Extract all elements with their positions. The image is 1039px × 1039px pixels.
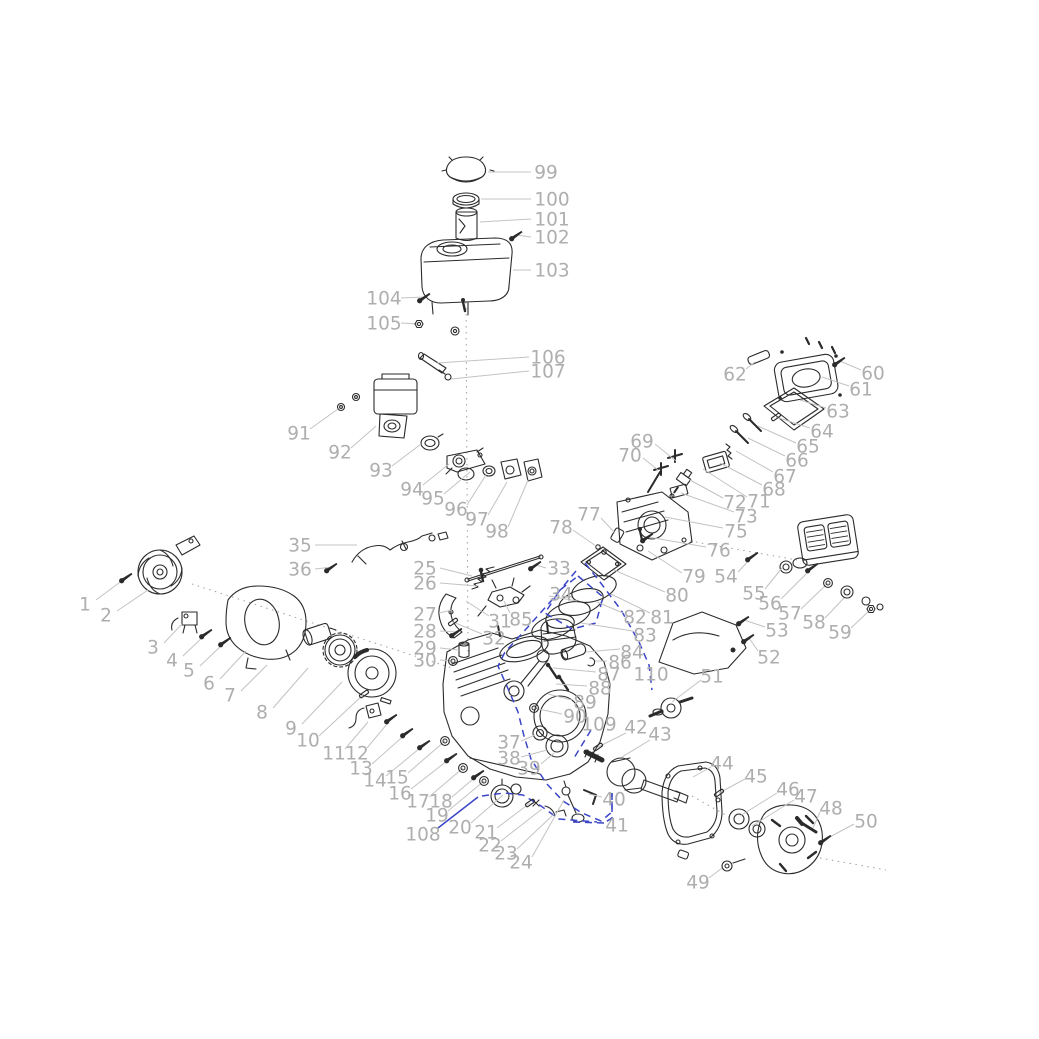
leader-line-46 [740, 793, 777, 816]
bolt-glyph [744, 550, 759, 563]
starter-cup-sprite [301, 623, 336, 647]
leader-line-91 [310, 409, 338, 429]
part-label-45: 45 [744, 767, 768, 788]
part-label-48: 48 [819, 799, 843, 820]
part-label-95: 95 [421, 489, 445, 510]
leader-line-77 [601, 518, 615, 533]
leader-line-98 [508, 480, 528, 527]
fuel-cap-sprite [442, 157, 494, 182]
part-label-107: 107 [530, 362, 565, 383]
bolt-glyph [383, 712, 398, 725]
leader-line-87 [553, 668, 596, 672]
bolt-glyph [443, 751, 458, 764]
leader-line-72 [690, 480, 723, 498]
leader-line-22 [501, 809, 542, 841]
leader-line-43 [622, 740, 650, 757]
part-label-49: 49 [686, 873, 710, 894]
leader-line-101 [480, 219, 531, 222]
leader-line-67 [736, 451, 773, 472]
kit-outline-3 [482, 793, 597, 822]
part-label-109: 109 [581, 715, 616, 736]
part-label-24: 24 [509, 853, 533, 874]
part-label-93: 93 [369, 461, 393, 482]
leader-line-53 [744, 620, 765, 627]
part-label-2: 2 [100, 606, 112, 627]
leader-line-70 [643, 458, 658, 470]
leader-line-9 [302, 682, 342, 724]
main-bearing-sprite [546, 735, 568, 757]
leader-line-49 [709, 868, 722, 878]
part-label-14: 14 [363, 771, 387, 792]
part-label-85: 85 [509, 610, 533, 631]
part-label-100: 100 [534, 190, 569, 211]
part-label-9: 9 [285, 719, 297, 740]
part-label-32: 32 [482, 629, 506, 650]
part-label-108: 108 [405, 825, 440, 846]
part-label-30: 30 [413, 651, 437, 672]
camshaft-sprite [650, 698, 692, 718]
flywheel-sprite [348, 649, 396, 704]
part-label-41: 41 [605, 816, 629, 837]
leader-line-93 [392, 444, 421, 466]
part-label-4: 4 [166, 651, 178, 672]
leader-line-88 [556, 684, 587, 686]
part-label-76: 76 [707, 541, 731, 562]
leader-line-65 [758, 426, 796, 443]
leader-line-75 [665, 517, 723, 528]
axis-line-2 [690, 541, 797, 560]
part-label-102: 102 [534, 228, 569, 249]
leader-line-57 [801, 583, 828, 609]
rocker-cover-sprite [773, 338, 842, 403]
crankshaft-sprite [585, 750, 688, 803]
part-label-79: 79 [682, 567, 706, 588]
leader-line-8 [273, 668, 308, 708]
cylinder-head-sprite [617, 492, 692, 560]
axis-line-3 [692, 796, 731, 818]
leader-line-23 [517, 814, 554, 849]
part-label-44: 44 [710, 754, 734, 775]
part-label-78: 78 [549, 518, 573, 539]
leader-line-24 [532, 800, 564, 857]
part-label-20: 20 [448, 818, 472, 839]
leader-line-69 [655, 444, 676, 461]
part-label-8: 8 [256, 703, 268, 724]
governor-rod-sprite [465, 555, 543, 589]
part-label-70: 70 [618, 446, 642, 467]
fuel-cap-gasket-sprite [453, 193, 479, 208]
fuel-filter-cup-sprite [456, 208, 477, 241]
bolt-glyph [198, 627, 213, 640]
leader-line-80 [614, 570, 665, 592]
part-label-42: 42 [624, 718, 648, 739]
crankcase-cover-sprite [662, 762, 722, 860]
leader-line-61 [822, 377, 849, 386]
part-label-52: 52 [757, 648, 781, 669]
leader-line-105 [401, 323, 419, 324]
leader-line-10 [319, 694, 364, 736]
part-number-labels: 1234567891011121314151617181920212223242… [79, 163, 885, 894]
part-label-62: 62 [723, 365, 747, 386]
bolt-glyph [804, 561, 819, 574]
leader-line-55 [765, 568, 782, 589]
part-label-98: 98 [485, 522, 509, 543]
part-label-54: 54 [714, 567, 738, 588]
part-label-57: 57 [778, 604, 802, 625]
leader-line-15 [408, 741, 445, 773]
muffler-sprite [780, 514, 883, 610]
leader-line-45 [719, 779, 745, 793]
part-label-11: 11 [322, 744, 346, 765]
leader-line-38 [521, 750, 547, 757]
leader-line-95 [444, 472, 470, 494]
bolt-glyph [118, 571, 133, 584]
axis-line-0 [466, 302, 468, 652]
part-label-6: 6 [203, 674, 215, 695]
leader-line-62 [746, 362, 755, 369]
leader-line-33 [536, 565, 546, 568]
part-label-59: 59 [828, 623, 852, 644]
part-label-26: 26 [413, 574, 437, 595]
starter-pulley-sprite [323, 633, 357, 667]
leader-line-97 [488, 482, 507, 515]
part-label-51: 51 [700, 667, 724, 688]
leader-line-82 [597, 602, 623, 613]
engine-parts-diagram: 1234567891011121314151617181920212223242… [0, 0, 1039, 1039]
part-label-3: 3 [147, 638, 159, 659]
stop-switch-sprite [349, 703, 381, 728]
part-label-33: 33 [547, 559, 571, 580]
leader-line-31 [466, 601, 489, 616]
part-label-43: 43 [648, 725, 672, 746]
part-label-1: 1 [79, 595, 91, 616]
part-label-50: 50 [854, 812, 878, 833]
part-label-39: 39 [517, 759, 541, 780]
part-label-92: 92 [328, 443, 352, 464]
pto-housing-sprite [722, 805, 822, 874]
ignition-coil-sprite [172, 612, 197, 633]
bolt-glyph [217, 635, 232, 648]
carb-insulator-sprite [483, 459, 542, 481]
part-label-110: 110 [633, 665, 668, 686]
part-label-7: 7 [224, 686, 236, 707]
leader-line-78 [573, 530, 596, 546]
part-label-61: 61 [849, 380, 873, 401]
leader-line-58 [825, 598, 844, 618]
part-label-10: 10 [296, 731, 320, 752]
leader-line-66 [748, 438, 785, 456]
leader-line-60 [840, 361, 861, 370]
part-label-80: 80 [665, 586, 689, 607]
part-label-47: 47 [794, 787, 818, 808]
part-label-58: 58 [802, 613, 826, 634]
leader-line-106 [437, 357, 529, 363]
fuel-line-sprite [419, 353, 452, 381]
leader-line-29 [440, 648, 459, 650]
bolt-glyph [399, 726, 414, 739]
leader-line-27 [439, 610, 452, 613]
part-label-77: 77 [577, 505, 601, 526]
part-label-36: 36 [288, 560, 312, 581]
leader-line-2 [117, 590, 148, 611]
part-label-35: 35 [288, 536, 312, 557]
part-label-40: 40 [602, 790, 626, 811]
leader-line-107 [451, 371, 529, 379]
leader-line-41 [572, 822, 604, 823]
leader-line-89 [548, 694, 572, 700]
leader-line-92 [351, 426, 376, 448]
part-label-34: 34 [549, 585, 573, 606]
recoil-starter-sprite [138, 536, 200, 594]
part-label-19: 19 [425, 806, 449, 827]
part-label-99: 99 [534, 163, 558, 184]
part-label-105: 105 [366, 314, 401, 335]
leader-line-94 [423, 464, 449, 485]
axis-line-4 [820, 858, 886, 870]
leader-line-68 [720, 463, 762, 485]
breather-tube-sprite [747, 350, 770, 366]
exploded-diagram-canvas: 1234567891011121314151617181920212223242… [0, 0, 1039, 1039]
part-label-103: 103 [534, 261, 569, 282]
part-label-91: 91 [287, 424, 311, 445]
leader-line-6 [220, 651, 246, 679]
leader-line-26 [440, 583, 477, 586]
head-gasket-sprite [581, 547, 626, 580]
leader-line-28 [440, 631, 457, 632]
part-label-5: 5 [183, 661, 195, 682]
part-label-75: 75 [724, 522, 748, 543]
leader-line-37 [521, 735, 535, 741]
leader-line-102 [517, 235, 531, 237]
bolt-glyph [817, 833, 832, 846]
air-cleaner-sprite [338, 374, 418, 438]
leader-line-39 [541, 753, 554, 764]
leader-line-3 [164, 624, 182, 643]
carb-gasket-sprite [421, 434, 443, 450]
bolt-glyph [416, 738, 431, 751]
part-label-104: 104 [366, 289, 401, 310]
part-label-63: 63 [826, 402, 850, 423]
